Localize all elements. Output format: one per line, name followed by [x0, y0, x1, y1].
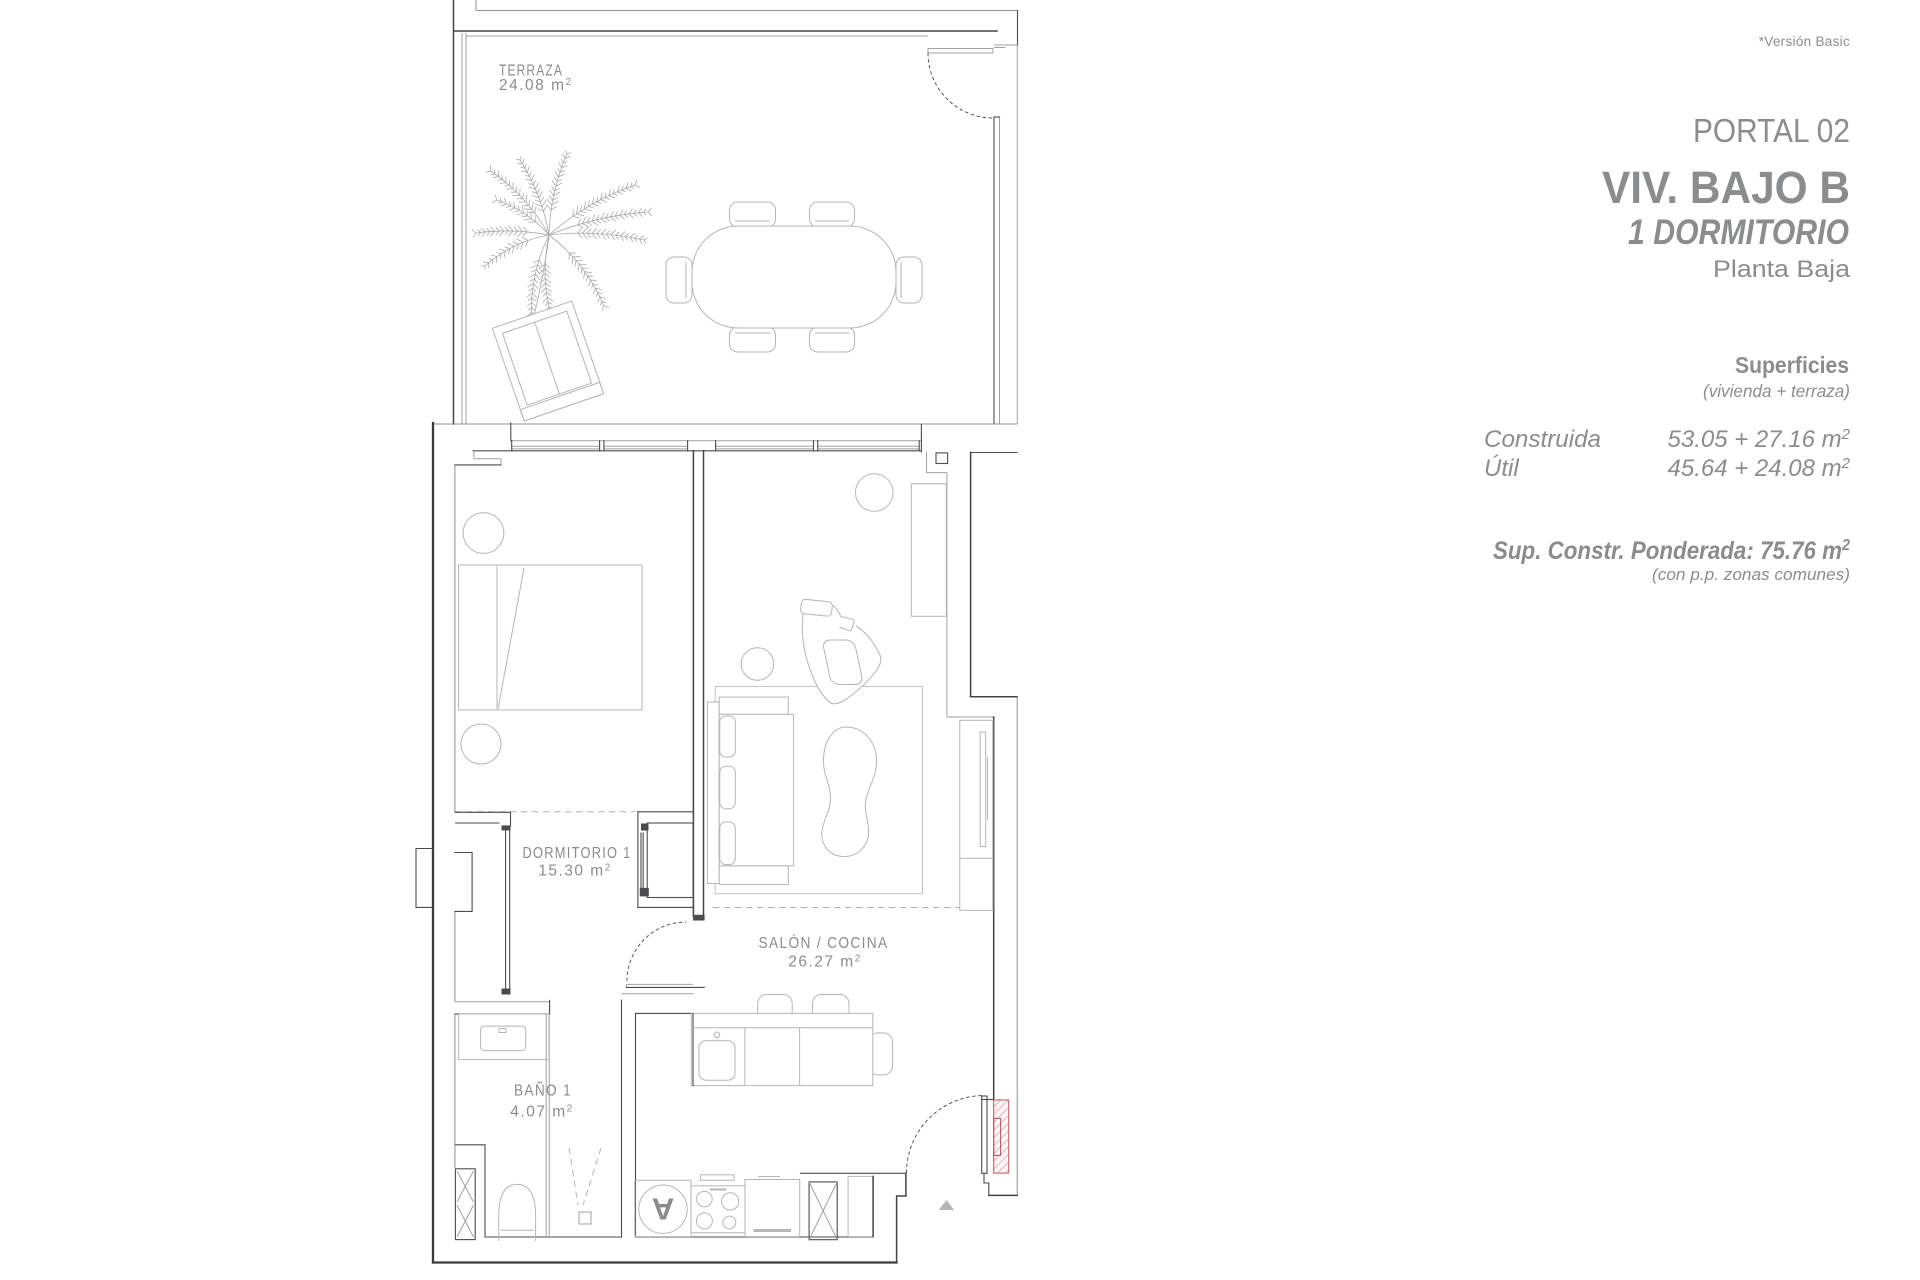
svg-text:(con p.p. zonas comunes): (con p.p. zonas comunes) [1652, 566, 1850, 584]
svg-text:1 DORMITORIO: 1 DORMITORIO [1628, 213, 1849, 252]
svg-text:53.05 + 27.16 m2: 53.05 + 27.16 m2 [1668, 426, 1851, 453]
svg-text:4.07 m2: 4.07 m2 [510, 1104, 573, 1121]
svg-text:A: A [652, 1192, 674, 1227]
svg-text:Planta Baja: Planta Baja [1713, 256, 1851, 283]
svg-text:45.64 + 24.08 m2: 45.64 + 24.08 m2 [1668, 455, 1851, 482]
svg-text:24.08 m2: 24.08 m2 [499, 77, 573, 94]
svg-text:Sup. Constr. Ponderada: 75.76: Sup. Constr. Ponderada: 75.76 m2 [1493, 537, 1850, 565]
svg-text:26.27 m2: 26.27 m2 [788, 954, 862, 971]
svg-text:VIV. BAJO B: VIV. BAJO B [1602, 162, 1850, 213]
svg-text:BAÑO 1: BAÑO 1 [514, 1083, 572, 1100]
svg-text:(vivienda + terraza): (vivienda + terraza) [1703, 381, 1850, 401]
svg-text:Útil: Útil [1484, 455, 1519, 482]
svg-text:DORMITORIO 1: DORMITORIO 1 [523, 845, 632, 862]
svg-text:SALÓN / COCINA: SALÓN / COCINA [759, 935, 889, 952]
svg-text:15.30 m2: 15.30 m2 [538, 863, 612, 880]
svg-text:*Versión Basic: *Versión Basic [1759, 34, 1850, 49]
svg-text:PORTAL 02: PORTAL 02 [1693, 112, 1850, 149]
svg-text:Construida: Construida [1484, 426, 1601, 453]
svg-text:Superficies: Superficies [1735, 352, 1849, 378]
